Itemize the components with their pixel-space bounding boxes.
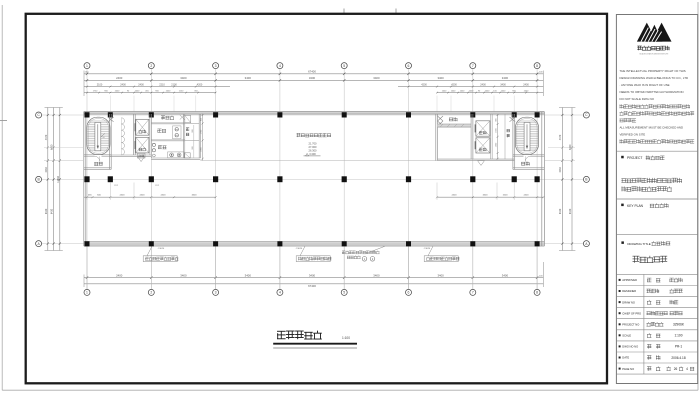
svg-text:2400: 2400	[523, 83, 529, 86]
svg-text:4470: 4470	[559, 134, 562, 140]
svg-text:CHIEF OF PRO: CHIEF OF PRO	[622, 311, 641, 315]
svg-text:2400: 2400	[120, 194, 126, 196]
svg-text:6430: 6430	[51, 144, 54, 150]
svg-text:3400: 3400	[192, 194, 198, 196]
svg-text:2400: 2400	[452, 194, 458, 196]
svg-text:4200: 4200	[421, 83, 427, 86]
svg-text:2400: 2400	[524, 194, 530, 196]
svg-text:3400: 3400	[245, 273, 252, 277]
svg-text:3400: 3400	[502, 76, 509, 80]
svg-text:C3024: C3024	[424, 248, 431, 250]
svg-text:1: 1	[86, 291, 88, 295]
svg-text:1930: 1930	[559, 167, 562, 173]
svg-text:67400: 67400	[308, 284, 316, 288]
svg-text:4470: 4470	[45, 134, 48, 140]
svg-text:3: 3	[215, 64, 217, 68]
svg-text:3400: 3400	[483, 194, 489, 196]
svg-text:DWG NO NO: DWG NO NO	[622, 345, 638, 349]
svg-text:4: 4	[686, 367, 688, 371]
svg-text:DRAW NO: DRAW NO	[622, 300, 635, 304]
svg-text:SCALE: SCALE	[622, 334, 631, 338]
svg-text:2400: 2400	[480, 83, 486, 86]
svg-text:12860: 12860	[57, 175, 60, 182]
svg-text:3400: 3400	[437, 273, 444, 277]
svg-text:C3024: C3024	[296, 248, 303, 250]
svg-text:3400: 3400	[500, 83, 506, 86]
svg-text:5: 5	[343, 64, 345, 68]
svg-text:2: 2	[150, 64, 152, 68]
svg-text:3.300: 3.300	[309, 152, 316, 156]
svg-text:2400: 2400	[140, 194, 146, 196]
svg-text:DESIGNER: DESIGNER	[622, 289, 636, 293]
svg-text:7: 7	[472, 64, 474, 68]
svg-text:2400: 2400	[116, 273, 123, 277]
svg-text:2400: 2400	[120, 83, 126, 86]
svg-text:32906K: 32906K	[673, 323, 685, 327]
svg-text:21.700: 21.700	[309, 141, 317, 145]
svg-text:1:100: 1:100	[342, 336, 350, 340]
svg-text:26.300: 26.300	[309, 148, 317, 152]
svg-text:2: 2	[150, 291, 152, 295]
svg-text:. ANYONE WHO IS IN RIGHT OF US: . ANYONE WHO IS IN RIGHT OF USE	[620, 83, 670, 87]
svg-text:6430: 6430	[559, 208, 562, 214]
svg-text:PR-1: PR-1	[675, 345, 682, 349]
svg-text:6430: 6430	[45, 208, 48, 214]
svg-text:5: 5	[343, 291, 345, 295]
svg-text:6: 6	[408, 291, 410, 295]
svg-text:2400: 2400	[116, 76, 123, 80]
svg-text:C3024: C3024	[158, 248, 165, 250]
svg-text:KEY PLAN: KEY PLAN	[627, 204, 644, 208]
svg-text:DRAWING TITLE: DRAWING TITLE	[627, 242, 650, 246]
svg-text:3400: 3400	[437, 76, 444, 80]
svg-text:8: 8	[536, 64, 538, 68]
svg-text:27.000: 27.000	[309, 145, 317, 149]
svg-text:67400: 67400	[308, 70, 316, 74]
svg-text:1: 1	[86, 64, 88, 68]
svg-text:VERIFIED ON SITE: VERIFIED ON SITE	[620, 133, 646, 137]
svg-text:NEEDS TO OBTAIN WRITTEN AUTHOR: NEEDS TO OBTAIN WRITTEN AUTHORIZATION	[620, 90, 684, 94]
svg-text:900: 900	[192, 146, 194, 149]
svg-text:3400: 3400	[502, 273, 509, 277]
svg-text:2400: 2400	[161, 194, 167, 196]
svg-text:3400: 3400	[373, 76, 380, 80]
svg-text:2210: 2210	[159, 83, 165, 86]
svg-text:3400: 3400	[245, 76, 252, 80]
svg-text:8: 8	[536, 291, 538, 295]
svg-text:PROJECT NO: PROJECT NO	[622, 323, 639, 327]
svg-text:900: 900	[192, 129, 194, 132]
svg-text:ALL MEASUREMENT MUST BE CHECKE: ALL MEASUREMENT MUST BE CHECKED AND	[620, 126, 684, 130]
svg-text:6: 6	[408, 64, 410, 68]
svg-text:2400: 2400	[138, 83, 144, 86]
svg-text:THE INTELLECTUAL PROPERTY RIGH: THE INTELLECTUAL PROPERTY RIGHT OF THIS	[620, 69, 686, 73]
svg-text:3400: 3400	[309, 76, 316, 80]
svg-text:1500: 1500	[503, 194, 509, 196]
svg-text:3400: 3400	[309, 273, 316, 277]
svg-text:6430: 6430	[569, 144, 572, 150]
svg-text:3400: 3400	[373, 273, 380, 277]
svg-text:6430: 6430	[569, 208, 572, 214]
svg-text:PROJECT: PROJECT	[627, 156, 642, 160]
svg-text:2100: 2100	[97, 83, 103, 86]
svg-text:1:100: 1:100	[675, 334, 683, 338]
svg-text:7: 7	[472, 291, 474, 295]
svg-text:1930: 1930	[45, 167, 48, 173]
svg-text:DATE: DATE	[622, 356, 629, 360]
svg-text:3: 3	[215, 291, 217, 295]
svg-text:DO NOT SCALE DWG NO: DO NOT SCALE DWG NO	[620, 97, 655, 101]
svg-text:4: 4	[279, 64, 281, 68]
svg-text:3400: 3400	[180, 76, 187, 80]
svg-text:PAGE NO: PAGE NO	[622, 367, 634, 371]
svg-text:4: 4	[279, 291, 281, 295]
svg-text:6430: 6430	[51, 208, 54, 214]
svg-text:26: 26	[674, 367, 678, 371]
svg-text:DESIGN DRAWING WHICH BELONGS T: DESIGN DRAWING WHICH BELONGS TO CO., LTD	[620, 76, 689, 80]
svg-text:2100: 2100	[171, 83, 177, 86]
svg-text:2006.4.18: 2006.4.18	[671, 356, 685, 360]
svg-text:3400: 3400	[180, 273, 187, 277]
svg-text:4200: 4200	[197, 83, 203, 86]
svg-text:4200: 4200	[451, 83, 457, 86]
svg-text:APPROVED: APPROVED	[622, 278, 637, 282]
